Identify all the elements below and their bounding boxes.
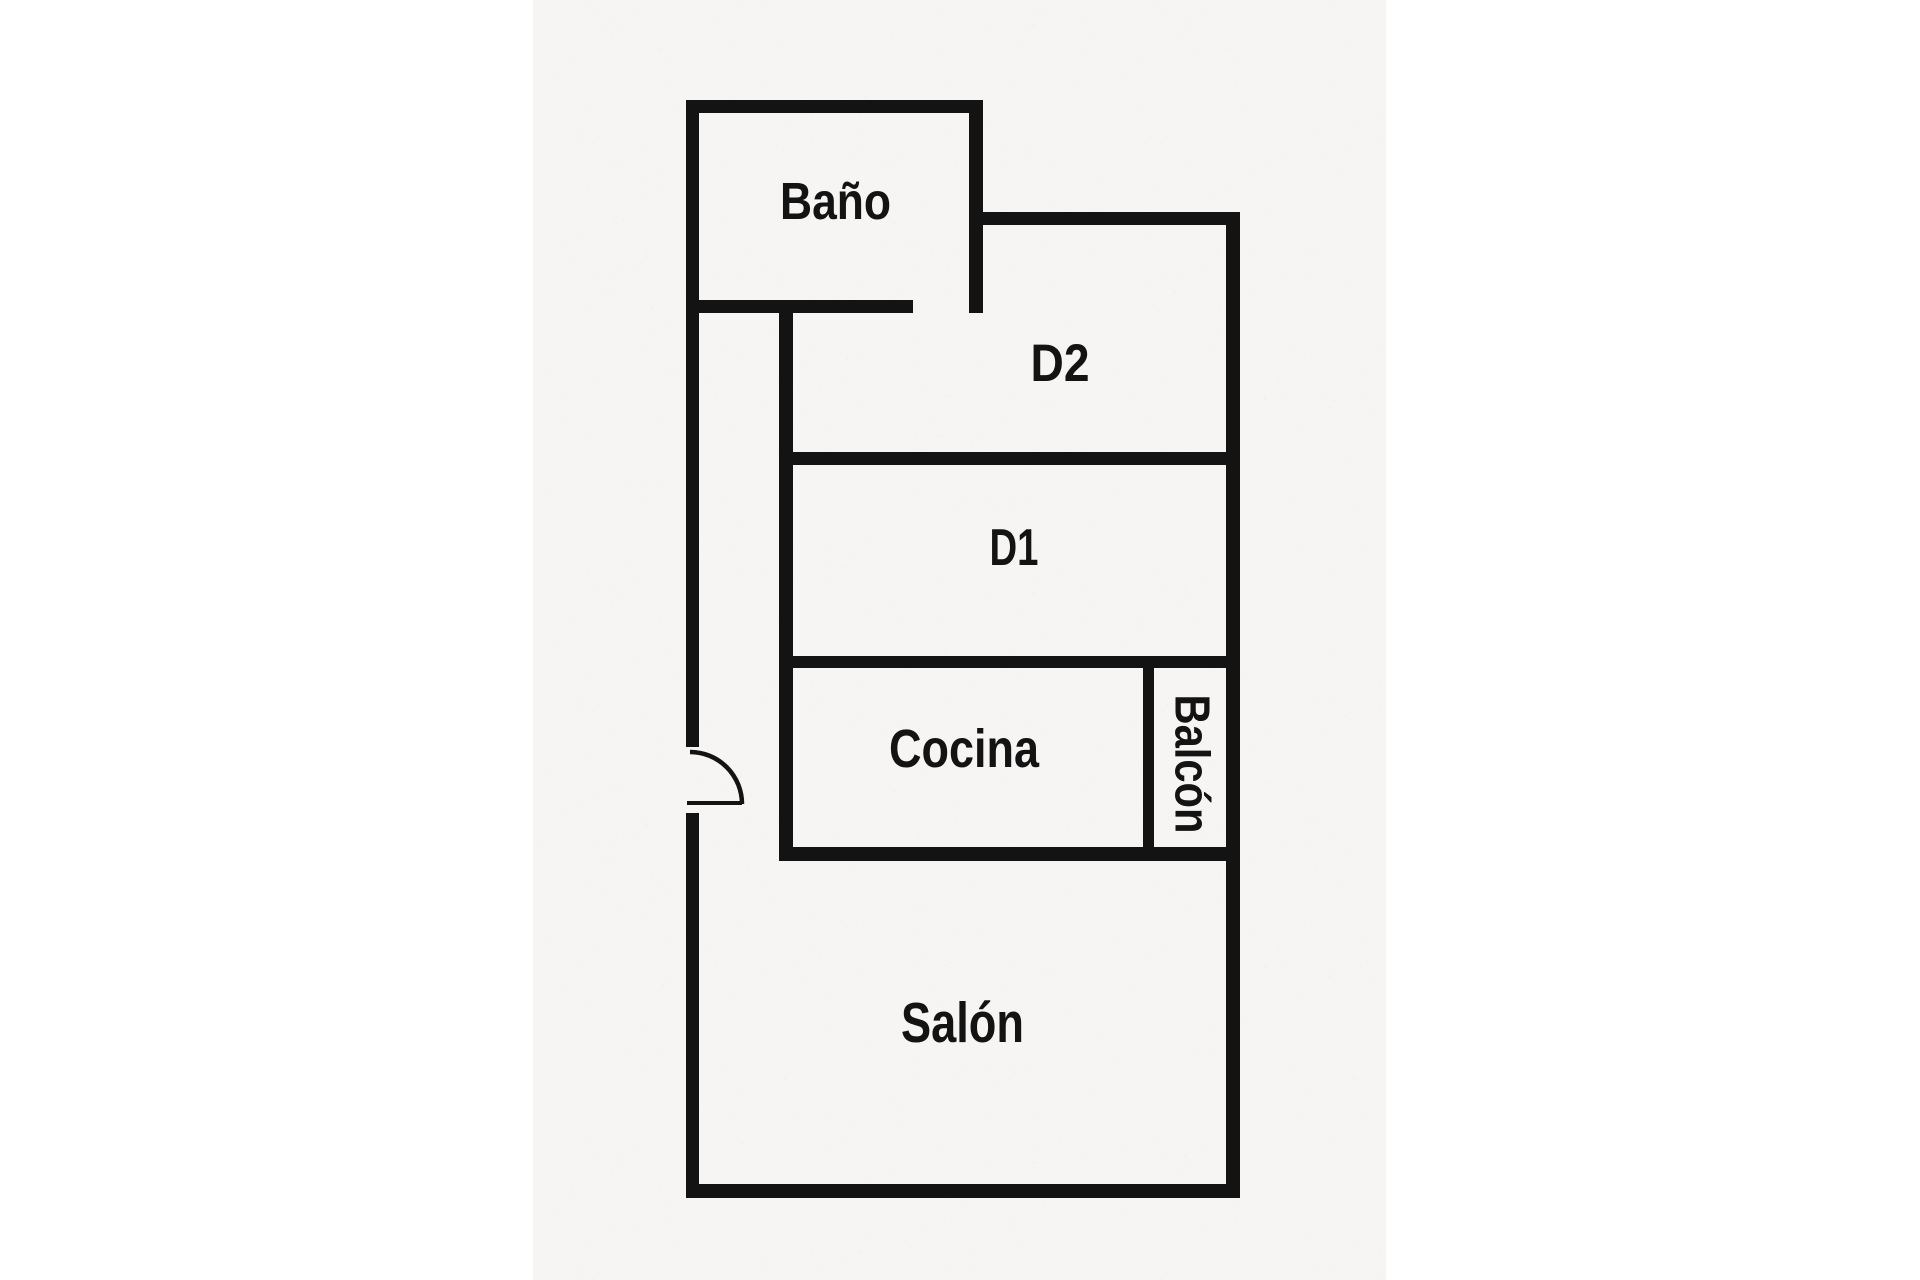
svg-text:Cocina: Cocina (889, 719, 1040, 779)
svg-text:D2: D2 (1031, 334, 1090, 393)
svg-text:Baño: Baño (780, 173, 891, 231)
svg-text:Salón: Salón (901, 991, 1024, 1055)
svg-text:Balcón: Balcón (1165, 695, 1219, 834)
svg-text:D1: D1 (990, 519, 1039, 577)
